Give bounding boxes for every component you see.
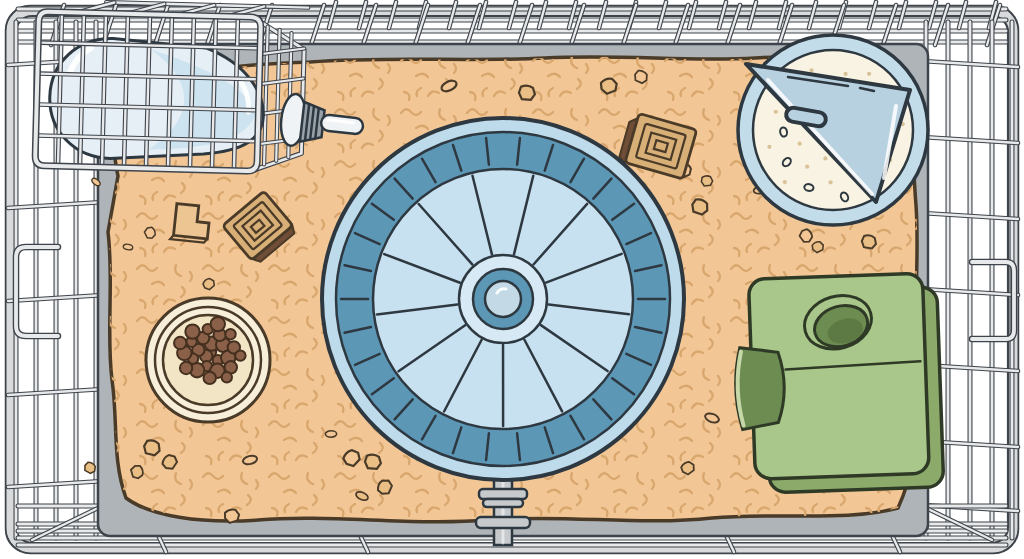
sand-bath (738, 35, 928, 225)
food-bowl (146, 298, 270, 422)
cage-scene (0, 0, 1024, 559)
wheel-stand-base (476, 517, 530, 528)
hideout-house (732, 273, 944, 494)
wheel-stand-flange (483, 499, 523, 507)
sipper-tube (320, 114, 364, 135)
debris-piece (325, 431, 336, 437)
illustration-hamster-cage-top-view (0, 0, 1024, 559)
wheel-axle-cap (485, 281, 521, 317)
wheel-stand-flange (479, 489, 527, 499)
debris-piece (701, 176, 712, 186)
